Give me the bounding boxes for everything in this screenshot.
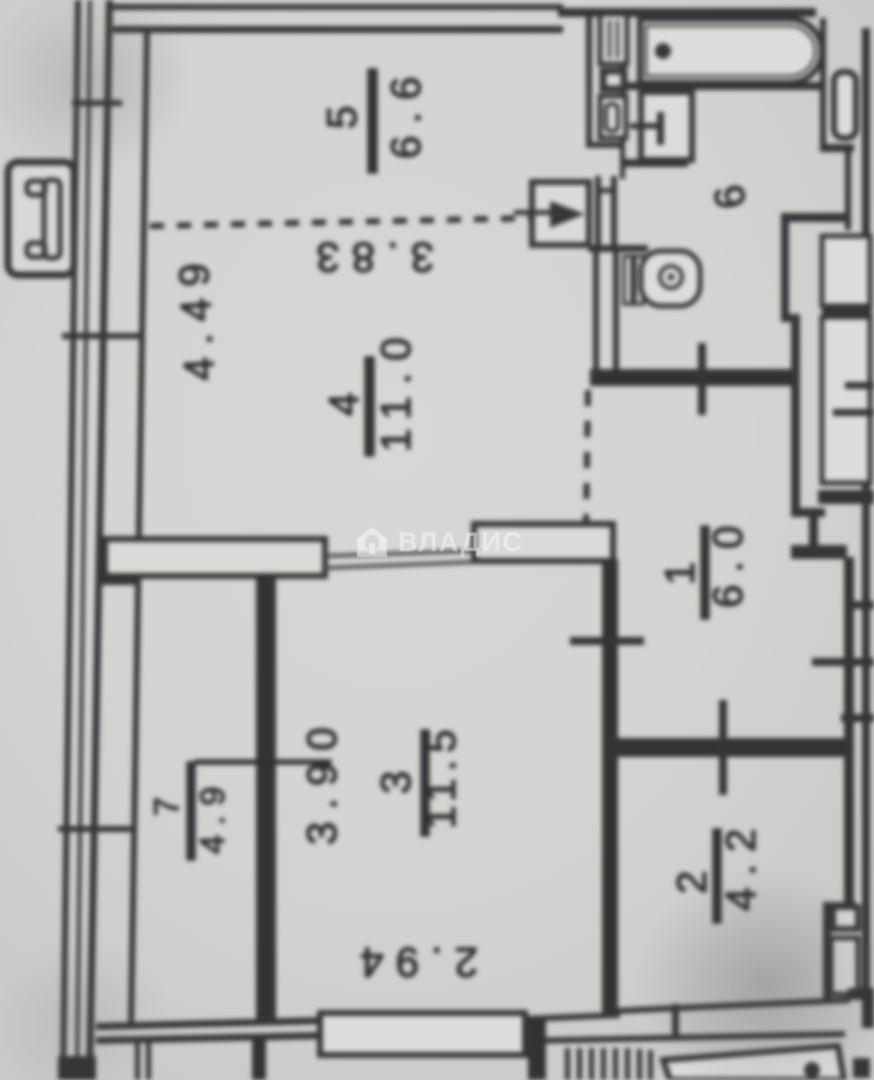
svg-text:ВЛАДИС: ВЛАДИС bbox=[398, 527, 523, 557]
